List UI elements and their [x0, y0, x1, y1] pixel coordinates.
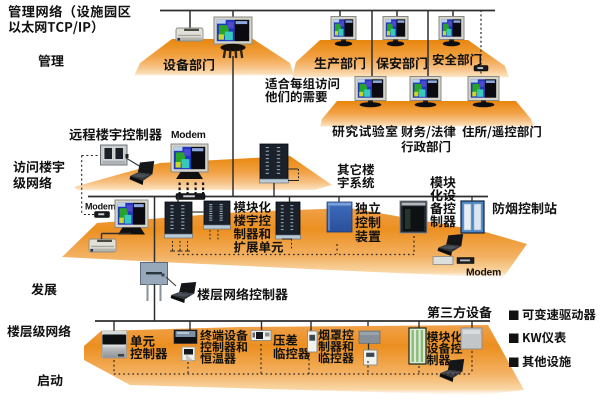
svg-text:Modem: Modem: [85, 201, 116, 211]
svg-text:Modem: Modem: [171, 130, 206, 141]
svg-text:Modem: Modem: [466, 267, 501, 278]
